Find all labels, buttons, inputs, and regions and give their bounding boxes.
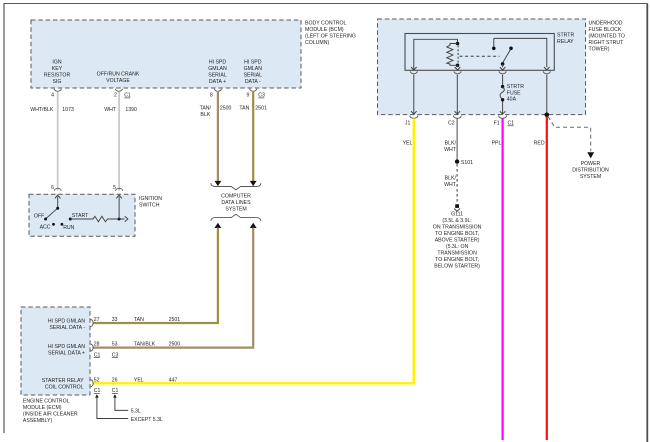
svg-text:UNDERHOOD: UNDERHOOD xyxy=(589,21,623,27)
svg-text:DATA -: DATA - xyxy=(245,79,261,85)
svg-text:9: 9 xyxy=(247,93,250,99)
svg-text:SERIAL DATA +: SERIAL DATA + xyxy=(48,351,85,357)
svg-text:(3.5L & 3.9L:: (3.5L & 3.9L: xyxy=(442,218,472,224)
svg-text:STRTR: STRTR xyxy=(557,33,574,39)
svg-text:WHT: WHT xyxy=(104,107,117,113)
svg-text:HI SPD GMLAN: HI SPD GMLAN xyxy=(48,344,85,350)
svg-text:ENGINE CONTROL: ENGINE CONTROL xyxy=(23,399,70,405)
svg-text:STARTER RELAY: STARTER RELAY xyxy=(42,378,84,384)
svg-text:52: 52 xyxy=(94,377,100,383)
svg-text:J1: J1 xyxy=(405,121,411,127)
svg-text:POWER: POWER xyxy=(581,161,601,167)
svg-text:TAN: TAN xyxy=(239,105,249,111)
svg-text:GMLAN: GMLAN xyxy=(244,66,263,72)
svg-text:OFF: OFF xyxy=(34,214,44,220)
svg-text:BODY CONTROL: BODY CONTROL xyxy=(305,21,347,27)
svg-text:2500: 2500 xyxy=(220,105,232,111)
svg-text:SIG: SIG xyxy=(53,79,62,85)
svg-text:TO ENGINE BOLT,: TO ENGINE BOLT, xyxy=(435,257,479,263)
svg-text:KEY: KEY xyxy=(52,66,63,72)
svg-text:TOWER): TOWER) xyxy=(589,47,610,53)
svg-text:2500: 2500 xyxy=(169,342,181,348)
svg-text:C2: C2 xyxy=(448,121,455,127)
svg-text:DATA +: DATA + xyxy=(209,79,226,85)
svg-text:MODULE (BCM): MODULE (BCM) xyxy=(305,27,344,33)
svg-text:TAN: TAN xyxy=(134,317,144,323)
svg-text:SERIAL: SERIAL xyxy=(244,73,263,79)
svg-text:BLK: BLK xyxy=(200,112,210,118)
svg-text:IGN: IGN xyxy=(52,60,61,66)
svg-text:1073: 1073 xyxy=(62,107,74,113)
svg-text:START: START xyxy=(72,213,89,219)
svg-text:2501: 2501 xyxy=(255,105,267,111)
svg-text:COMPUTER: COMPUTER xyxy=(221,193,251,199)
svg-text:WHT: WHT xyxy=(444,147,457,153)
svg-text:RUN: RUN xyxy=(63,225,74,231)
svg-text:SYSTEM: SYSTEM xyxy=(580,174,601,180)
svg-text:EXCEPT 5.3L: EXCEPT 5.3L xyxy=(131,417,163,423)
svg-text:(INSIDE AIR CLEANER: (INSIDE AIR CLEANER xyxy=(23,412,78,418)
svg-text:COLUMN): COLUMN) xyxy=(305,40,329,46)
svg-text:(5.3L: ON: (5.3L: ON xyxy=(446,244,469,250)
svg-text:DATA LINES: DATA LINES xyxy=(221,200,251,206)
svg-text:TRANSMISSION: TRANSMISSION xyxy=(437,251,477,257)
svg-text:26: 26 xyxy=(112,377,118,383)
svg-text:VOLTAGE: VOLTAGE xyxy=(106,78,130,84)
svg-text:2: 2 xyxy=(114,93,117,99)
svg-text:RELAY: RELAY xyxy=(557,39,574,45)
svg-text:SERIAL: SERIAL xyxy=(208,73,227,79)
svg-text:28: 28 xyxy=(94,342,100,348)
svg-text:8: 8 xyxy=(210,93,213,99)
svg-text:HI SPD GMLAN: HI SPD GMLAN xyxy=(48,318,85,324)
svg-text:SERIAL DATA -: SERIAL DATA - xyxy=(49,325,85,331)
svg-text:ASSEMBLY): ASSEMBLY) xyxy=(23,418,53,424)
svg-text:TAN/: TAN/ xyxy=(200,105,212,111)
svg-text:6: 6 xyxy=(51,185,54,191)
svg-text:1390: 1390 xyxy=(125,107,137,113)
svg-text:S101: S101 xyxy=(461,160,473,166)
svg-text:(MOUNTED TO: (MOUNTED TO xyxy=(589,34,625,40)
svg-text:STRTR: STRTR xyxy=(507,84,524,90)
svg-text:COIL CONTROL: COIL CONTROL xyxy=(45,384,84,390)
svg-text:ABOVE STARTER): ABOVE STARTER) xyxy=(435,238,480,244)
svg-text:TO ENGINE BOLT,: TO ENGINE BOLT, xyxy=(435,231,479,237)
svg-text:TAN/BLK: TAN/BLK xyxy=(134,342,156,348)
svg-text:RIGHT STRUT: RIGHT STRUT xyxy=(589,40,625,46)
svg-text:WHT/BLK: WHT/BLK xyxy=(30,107,54,113)
svg-text:33: 33 xyxy=(112,317,118,323)
svg-text:BELOW STARTER): BELOW STARTER) xyxy=(434,264,480,270)
svg-text:F1: F1 xyxy=(494,121,500,127)
svg-text:(LEFT OF STEERING: (LEFT OF STEERING xyxy=(305,34,356,40)
svg-text:27: 27 xyxy=(94,317,100,323)
svg-text:WHT: WHT xyxy=(444,182,457,188)
svg-text:OFF/RUN CRANK: OFF/RUN CRANK xyxy=(97,71,140,77)
svg-text:G111: G111 xyxy=(451,212,463,218)
svg-text:RESISTOR: RESISTOR xyxy=(44,73,71,79)
svg-text:BLK/: BLK/ xyxy=(445,140,457,146)
svg-text:447: 447 xyxy=(169,377,178,383)
svg-text:SYSTEM: SYSTEM xyxy=(225,206,246,212)
svg-text:DISTRIBUTION: DISTRIBUTION xyxy=(572,167,609,173)
svg-text:MODULE (ECM): MODULE (ECM) xyxy=(23,405,62,411)
svg-text:5.3L: 5.3L xyxy=(131,409,141,415)
svg-text:YEL: YEL xyxy=(403,140,413,146)
svg-text:GMLAN: GMLAN xyxy=(208,66,227,72)
svg-text:4: 4 xyxy=(51,93,54,99)
svg-text:2501: 2501 xyxy=(169,317,181,323)
svg-text:HI SPD: HI SPD xyxy=(209,60,227,66)
svg-text:40A: 40A xyxy=(507,97,517,103)
svg-text:RED: RED xyxy=(534,140,545,146)
svg-text:YEL: YEL xyxy=(134,377,144,383)
svg-text:BLK/: BLK/ xyxy=(445,175,457,181)
svg-text:FUSE: FUSE xyxy=(507,90,521,96)
svg-text:ACC: ACC xyxy=(40,225,51,231)
svg-text:FUSE BLOCK: FUSE BLOCK xyxy=(589,27,622,33)
svg-text:IGNITION: IGNITION xyxy=(139,196,162,202)
svg-text:HI SPD: HI SPD xyxy=(244,60,262,66)
svg-text:53: 53 xyxy=(112,342,118,348)
svg-text:PPL: PPL xyxy=(492,140,502,146)
svg-text:ON TRANSMISSION: ON TRANSMISSION xyxy=(433,225,482,231)
svg-text:SWITCH: SWITCH xyxy=(139,202,160,208)
